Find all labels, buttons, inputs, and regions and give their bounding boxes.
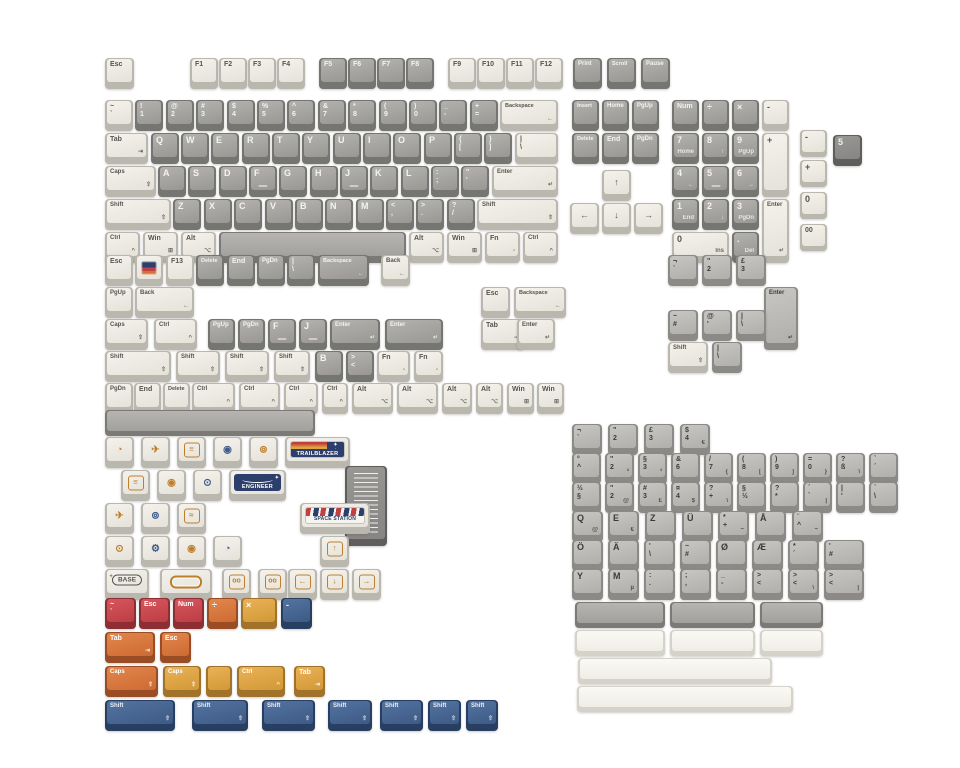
keycap-blank	[760, 602, 823, 628]
keycap-blank	[577, 686, 793, 712]
keycap-blank	[670, 630, 755, 656]
keycap-blank	[760, 630, 823, 656]
keycap-set-render: EscF1F2F3F4F5F6F7F8F9F10F11F12~ `! 1@ 2#…	[0, 0, 960, 768]
keycap-blank	[575, 602, 665, 628]
keycap-blank	[578, 658, 772, 684]
keycap-blank	[575, 630, 665, 656]
spacebar-kit	[0, 0, 960, 768]
keycap-blank	[670, 602, 755, 628]
